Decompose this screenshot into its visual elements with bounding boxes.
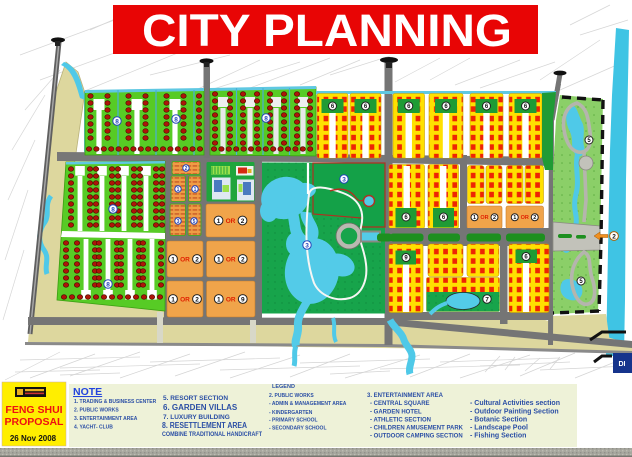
svg-text:2: 2 — [493, 215, 496, 221]
svg-text:1: 1 — [217, 218, 221, 225]
svg-text:- Botanic Section: - Botanic Section — [470, 417, 527, 424]
svg-text:8. RESETTLEMENT AREA: 8. RESETTLEMENT AREA — [162, 421, 247, 430]
svg-text:5: 5 — [193, 219, 196, 225]
svg-text:OR: OR — [521, 215, 529, 221]
svg-text:26 Nov 2008: 26 Nov 2008 — [10, 434, 57, 443]
svg-text:- KINDERGARTEN: - KINDERGARTEN — [269, 410, 313, 416]
svg-text:5. RESORT SECTION: 5. RESORT SECTION — [163, 395, 228, 402]
svg-text:1: 1 — [194, 187, 197, 193]
svg-text:3: 3 — [177, 219, 180, 225]
svg-text:NOTE: NOTE — [73, 386, 102, 398]
svg-text:2: 2 — [195, 256, 199, 263]
svg-text:3: 3 — [342, 176, 346, 183]
svg-text:2: 2 — [241, 256, 245, 263]
svg-text:3. ENTERTAINMENT AREA: 3. ENTERTAINMENT AREA — [367, 393, 444, 399]
svg-text:- Fishing Section: - Fishing Section — [470, 433, 526, 440]
svg-text:1: 1 — [171, 256, 175, 263]
svg-text:2: 2 — [195, 296, 199, 303]
svg-text:1: 1 — [217, 256, 221, 263]
svg-text:6. GARDEN VILLAS: 6. GARDEN VILLAS — [163, 403, 238, 412]
svg-text:1: 1 — [217, 296, 221, 303]
svg-text:PROPOSAL: PROPOSAL — [5, 416, 65, 428]
svg-text:2. PUBLIC WORKS: 2. PUBLIC WORKS — [74, 408, 119, 414]
svg-text:- ADMIN & MANAGEMENT AREA: - ADMIN & MANAGEMENT AREA — [269, 401, 347, 407]
svg-text:- Cultural Activities section: - Cultural Activities section — [470, 400, 560, 407]
svg-text:8: 8 — [115, 118, 119, 125]
svg-text:- CENTRAL SQUARE: - CENTRAL SQUARE — [370, 401, 430, 407]
svg-text:8: 8 — [106, 281, 110, 288]
svg-text:- PRIMARY SCHOOL: - PRIMARY SCHOOL — [269, 418, 318, 424]
svg-text:7. LUXURY BUILDING: 7. LUXURY BUILDING — [163, 414, 230, 421]
svg-text:OR: OR — [226, 296, 236, 303]
svg-text:1. TRADING & BUSINESS CENTER: 1. TRADING & BUSINESS CENTER — [74, 399, 157, 405]
svg-text:8: 8 — [264, 115, 268, 122]
svg-text:3. ENTERTAINMENT AREA: 3. ENTERTAINMENT AREA — [74, 416, 138, 422]
svg-text:OR: OR — [480, 215, 488, 221]
svg-text:OR: OR — [226, 256, 236, 263]
svg-text:1: 1 — [171, 296, 175, 303]
svg-text:- Landscape Pool: - Landscape Pool — [470, 425, 528, 432]
svg-text:LEGEND: LEGEND — [272, 384, 295, 390]
svg-text:1: 1 — [177, 187, 180, 193]
svg-text:OR: OR — [180, 256, 190, 263]
svg-text:2: 2 — [185, 166, 188, 172]
svg-text:COMBINE TRADITIONAL HANDICRAFT: COMBINE TRADITIONAL HANDICRAFT — [162, 431, 262, 438]
svg-text:FENG SHUI: FENG SHUI — [5, 404, 62, 416]
svg-text:3: 3 — [305, 242, 309, 249]
svg-text:1: 1 — [513, 215, 516, 221]
svg-text:1: 1 — [473, 215, 476, 221]
svg-text:- OUTDOOR CAMPING SECTION: - OUTDOOR CAMPING SECTION — [370, 434, 463, 440]
svg-text:OR: OR — [180, 296, 190, 303]
svg-text:OR: OR — [226, 218, 236, 225]
svg-text:7: 7 — [485, 296, 489, 303]
svg-text:CITY PLANNING: CITY PLANNING — [142, 5, 512, 56]
svg-text:8: 8 — [111, 206, 115, 213]
svg-text:2. PUBLIC WORKS: 2. PUBLIC WORKS — [269, 393, 314, 399]
svg-text:- CHILDREN AMUSEMENT PARK: - CHILDREN AMUSEMENT PARK — [370, 426, 464, 432]
svg-text:DI: DI — [619, 361, 626, 368]
svg-text:8: 8 — [174, 116, 178, 123]
svg-text:4. YACHT- CLUB: 4. YACHT- CLUB — [74, 425, 113, 431]
svg-text:- Outdoor Painting Section: - Outdoor Painting Section — [470, 409, 559, 416]
svg-text:- GARDEN HOTEL: - GARDEN HOTEL — [370, 410, 422, 416]
svg-text:- ATHLETIC SECTION: - ATHLETIC SECTION — [370, 418, 431, 424]
svg-text:2: 2 — [241, 218, 245, 225]
svg-text:2: 2 — [612, 233, 616, 240]
svg-text:9: 9 — [241, 296, 245, 303]
svg-text:2: 2 — [533, 215, 536, 221]
svg-text:- SECONDARY SCHOOL: - SECONDARY SCHOOL — [269, 426, 327, 432]
